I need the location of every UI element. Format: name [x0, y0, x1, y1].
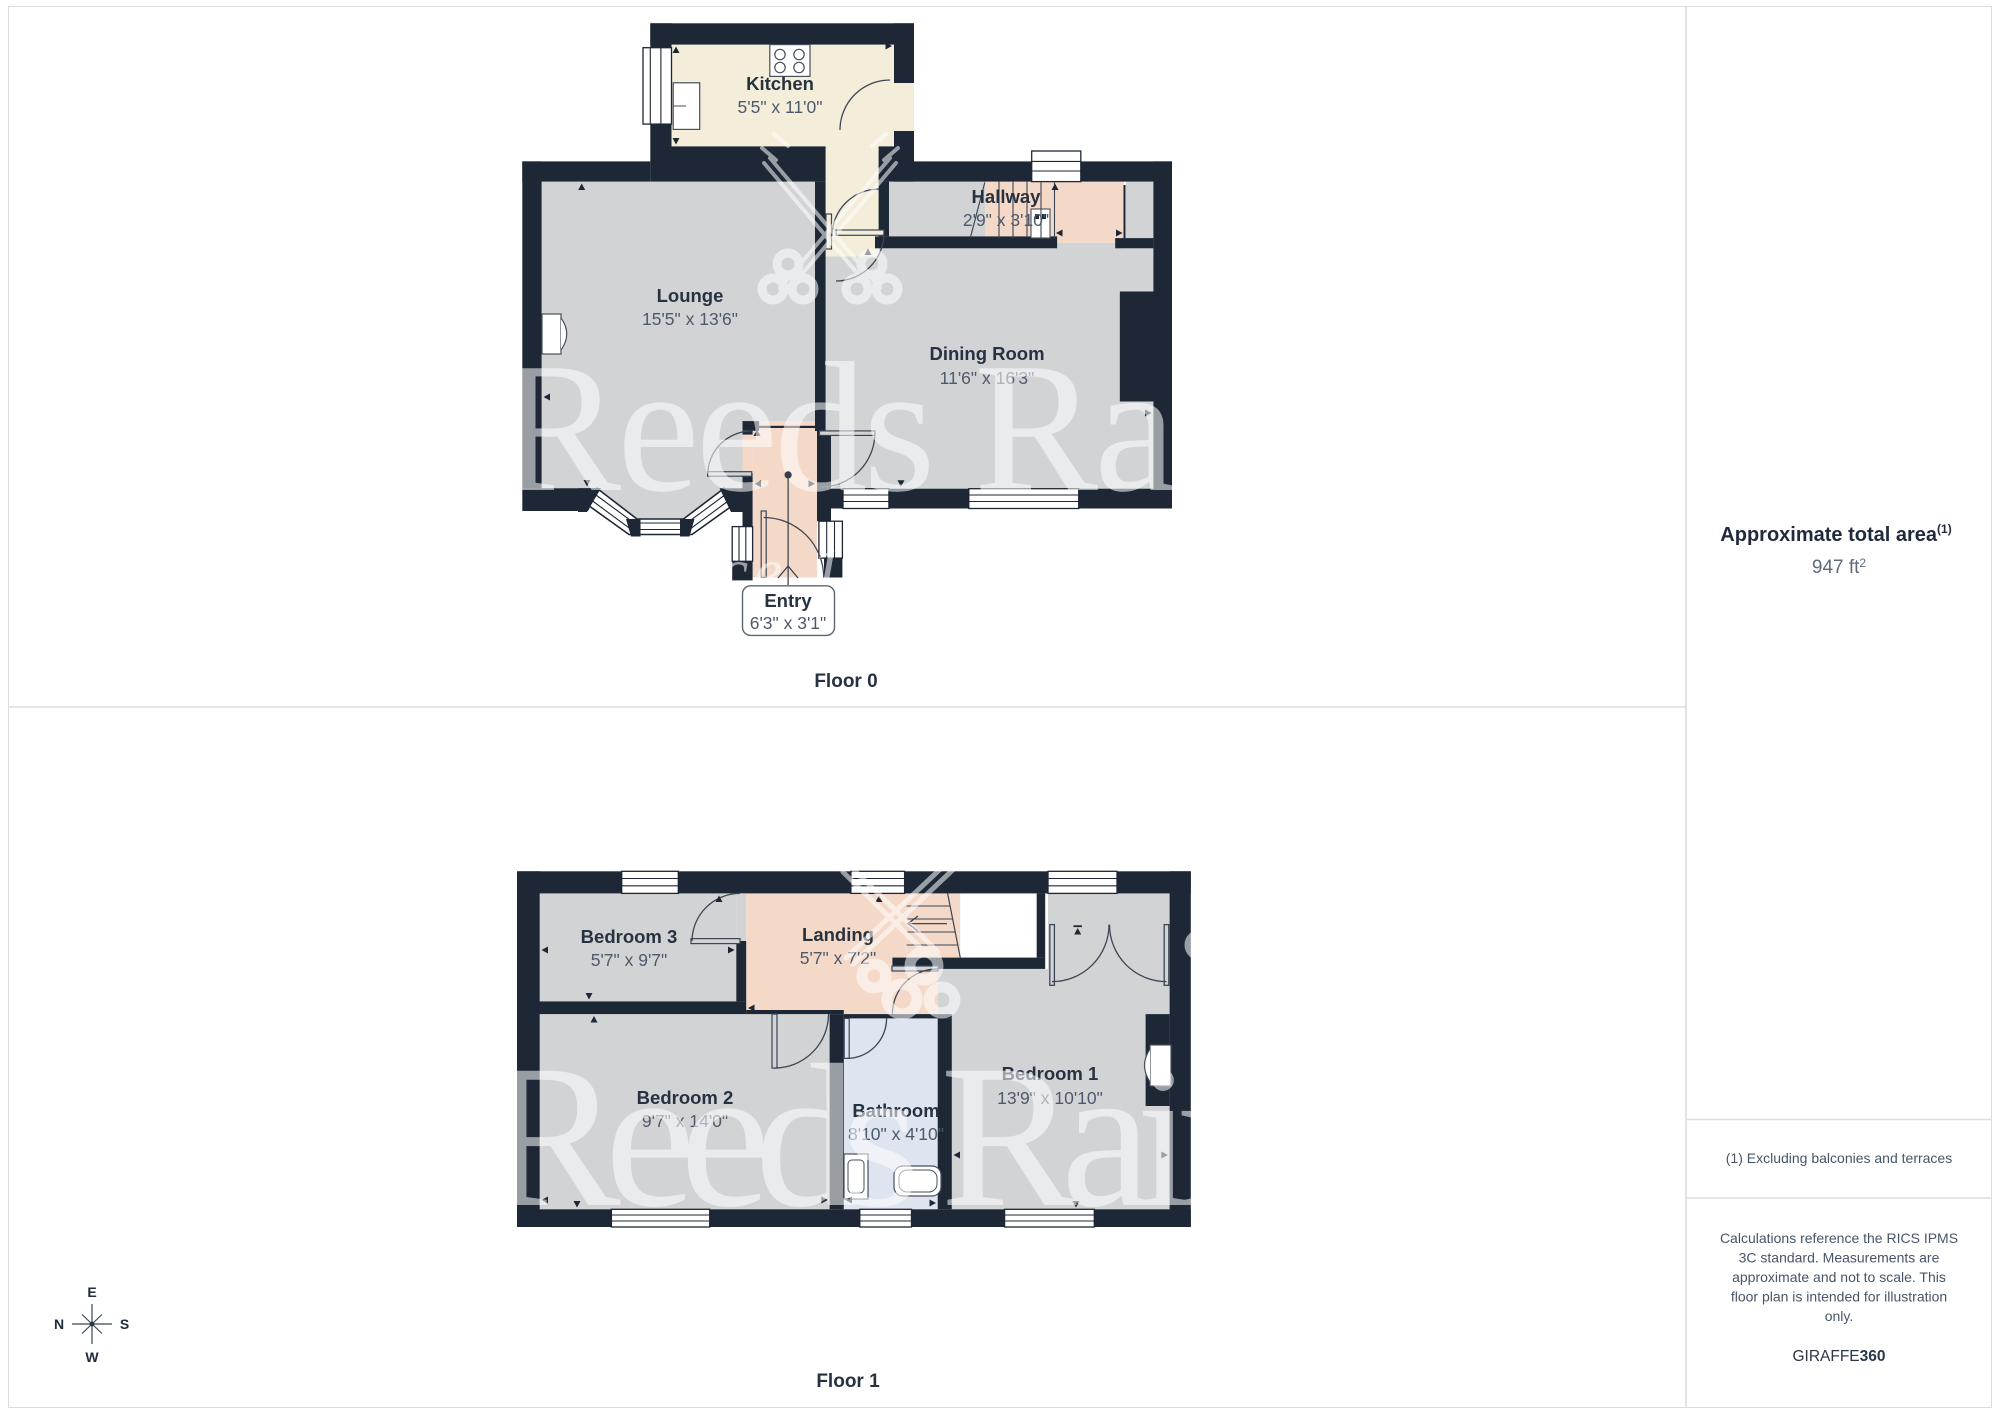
svg-text:W: W [85, 1349, 99, 1365]
svg-text:5'5" x 11'0": 5'5" x 11'0" [738, 97, 823, 117]
svg-text:Reeds Rains: Reeds Rains [497, 325, 1378, 531]
svg-text:Calculations reference the RIC: Calculations reference the RICS IPMS [1720, 1230, 1958, 1246]
svg-text:N: N [54, 1316, 64, 1332]
svg-text:5'7" x 9'7": 5'7" x 9'7" [591, 950, 668, 970]
svg-text:only.: only. [1825, 1308, 1854, 1324]
svg-text:floor plan is intended for ill: floor plan is intended for illustration [1731, 1289, 1947, 1305]
svg-text:Reeds Rains: Reeds Rains [484, 1023, 1336, 1250]
svg-text:6'3" x 3'1": 6'3" x 3'1" [750, 613, 827, 633]
svg-text:Hallway: Hallway [972, 186, 1042, 207]
svg-text:GIRAFFE360: GIRAFFE360 [1792, 1348, 1885, 1365]
svg-text:Bedroom 3: Bedroom 3 [581, 926, 678, 947]
svg-text:S: S [120, 1316, 129, 1332]
svg-text:Lounge: Lounge [657, 285, 724, 306]
svg-text:Approximate total area(1): Approximate total area(1) [1720, 522, 1951, 546]
svg-text:(1) Excluding balconies and te: (1) Excluding balconies and terraces [1726, 1150, 1952, 1166]
svg-text:947 ft2: 947 ft2 [1812, 556, 1867, 578]
svg-text:Kitchen: Kitchen [746, 73, 814, 94]
svg-text:Floor 1: Floor 1 [816, 1371, 880, 1392]
svg-text:Entry: Entry [764, 590, 812, 611]
svg-text:2'9" x 3'10": 2'9" x 3'10" [963, 210, 1049, 230]
svg-text:3C standard. Measurements are: 3C standard. Measurements are [1739, 1250, 1940, 1266]
svg-text:approximate and not to scale.: approximate and not to scale. This [1732, 1269, 1946, 1285]
svg-text:E: E [87, 1284, 96, 1300]
svg-text:Floor 0: Floor 0 [814, 671, 877, 692]
